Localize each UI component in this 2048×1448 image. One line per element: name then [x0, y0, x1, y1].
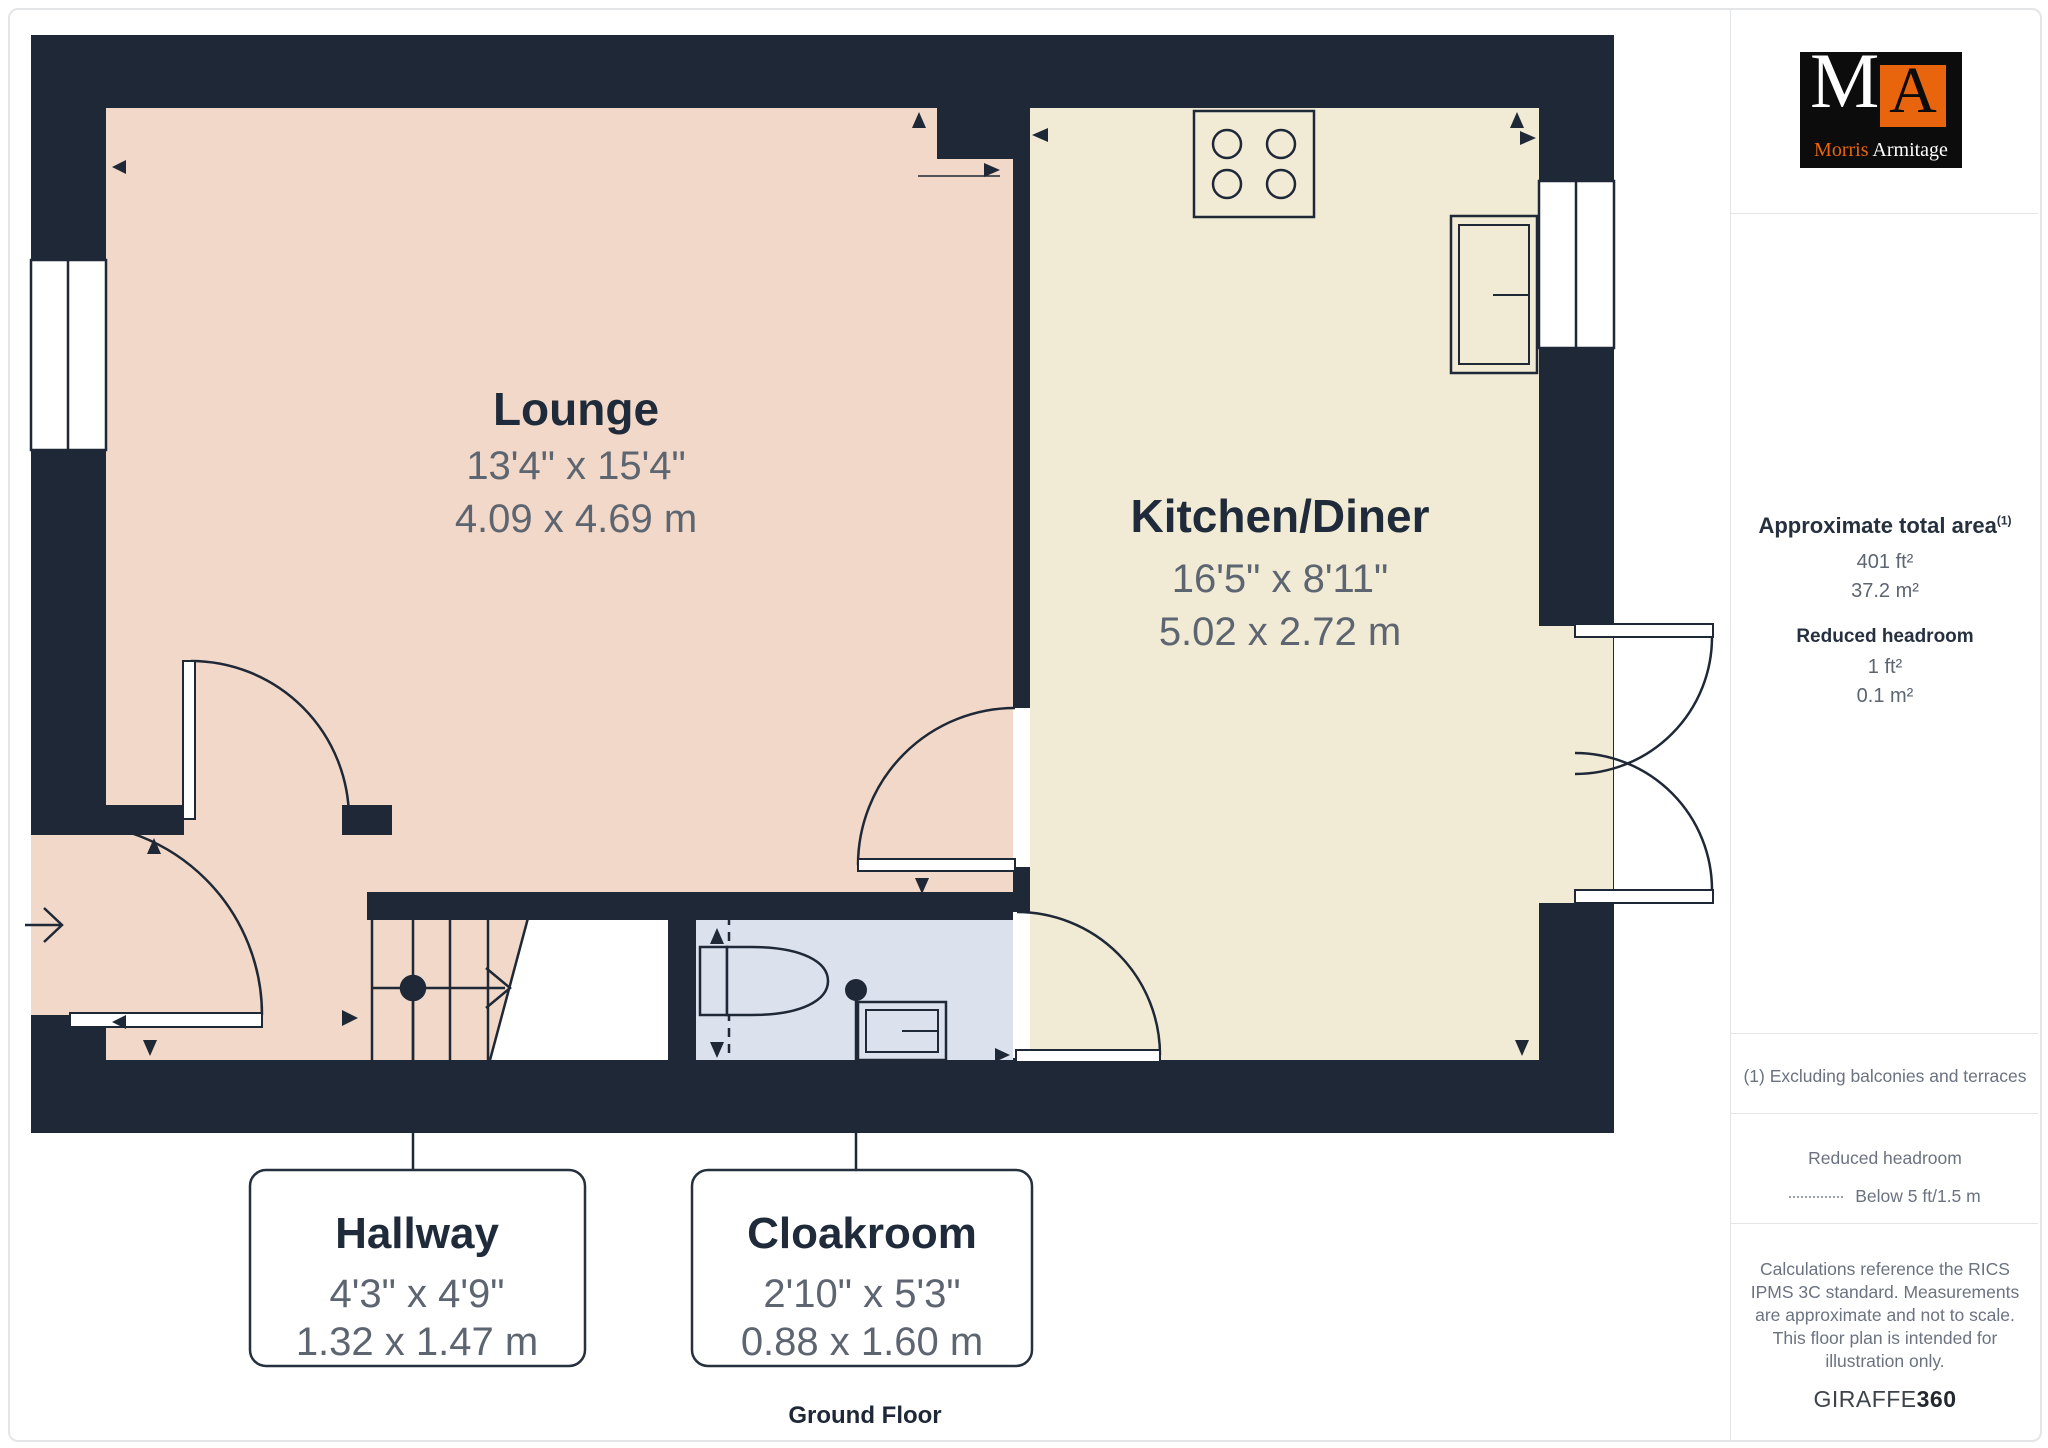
logo-name-first: Morris: [1814, 139, 1868, 161]
divider: [1730, 1113, 2038, 1114]
kitchen-door-recess: [1539, 626, 1613, 903]
cloakroom-left-wall: [668, 913, 696, 1060]
logo-letter-m: M: [1810, 36, 1879, 126]
kitchen-label: Kitchen/Diner: [1130, 490, 1429, 542]
kitchen-dims-metric: 5.02 x 2.72 m: [1159, 610, 1401, 654]
callout-boxes: Hallway 4'3" x 4'9" 1.32 x 1.47 m Cloakr…: [250, 1170, 1032, 1366]
reduced-headroom-legend-line: [1789, 1196, 1843, 1198]
cloakroom-label: Cloakroom: [747, 1209, 977, 1258]
reduced-headroom-ft: 1 ft²: [1730, 656, 2040, 679]
legend-item-label: Below 5 ft/1.5 m: [1855, 1186, 1980, 1206]
kitchen-window: [1539, 181, 1614, 348]
toilet-cistern: [700, 947, 727, 1015]
disclaimer-text: Calculations reference the RICS IPMS 3C …: [1745, 1258, 2025, 1373]
cloakroom-dims-imperial: 2'10" x 5'3": [763, 1272, 960, 1316]
legend-row: Below 5 ft/1.5 m: [1730, 1186, 2040, 1207]
kitchen-dims-imperial: 16'5" x 8'11": [1172, 557, 1388, 601]
legend-title: Reduced headroom: [1730, 1148, 2040, 1169]
reduced-headroom-m: 0.1 m²: [1730, 685, 2040, 708]
floor-label: Ground Floor: [715, 1402, 1015, 1430]
logo-name-last: Armitage: [1872, 139, 1948, 161]
sink-icon: [1451, 216, 1537, 373]
hallway-dims-imperial: 4'3" x 4'9": [330, 1272, 505, 1316]
cloakroom-door-gap: [1013, 912, 1030, 1058]
info-sidebar: A M Morris Armitage Approximate total ar…: [1730, 8, 2040, 1438]
lounge-dims-metric: 4.09 x 4.69 m: [455, 497, 697, 541]
divider: [1730, 1223, 2038, 1224]
reduced-headroom-title: Reduced headroom: [1730, 626, 2040, 648]
lounge-window: [31, 260, 106, 450]
stove-hob-icon: [1194, 111, 1314, 217]
floorplan-drawing: Lounge 13'4" x 15'4" 4.09 x 4.69 m Kitch…: [0, 0, 1730, 1448]
lounge-kitchen-corner-block: [937, 35, 1030, 159]
logo-name: Morris Armitage: [1800, 139, 1962, 162]
hallway-anchor-dot: [401, 976, 425, 1000]
divider: [1730, 1033, 2038, 1034]
divider: [1730, 213, 2038, 214]
logo-letter-a: A: [1880, 53, 1946, 129]
agency-logo: A M Morris Armitage: [1800, 52, 1962, 168]
lounge-kitchen-door-gap: [1013, 708, 1030, 867]
lounge-dims-imperial: 13'4" x 15'4": [466, 444, 685, 488]
cloakroom-anchor-dot: [845, 979, 867, 1001]
total-area-ft: 401 ft²: [1730, 551, 2040, 574]
hallway-label: Hallway: [335, 1209, 499, 1258]
bottom-wall: [31, 1060, 1614, 1133]
total-area-m: 37.2 m²: [1730, 580, 2040, 603]
area-footnote: (1) Excluding balconies and terraces: [1730, 1066, 2040, 1087]
hallway-lounge-wall: [106, 805, 184, 835]
cloakroom-dims-metric: 0.88 x 1.60 m: [741, 1320, 983, 1364]
footnote-marker: (1): [1997, 514, 2012, 528]
giraffe360-brand: GIRAFFE360: [1730, 1386, 2040, 1413]
lounge-label: Lounge: [493, 383, 659, 435]
hallway-dims-metric: 1.32 x 1.47 m: [296, 1320, 538, 1364]
floorplan-page: Lounge 13'4" x 15'4" 4.09 x 4.69 m Kitch…: [0, 0, 2048, 1448]
logo-a-square: A: [1880, 65, 1946, 127]
total-area-title: Approximate total area(1): [1730, 513, 2040, 539]
